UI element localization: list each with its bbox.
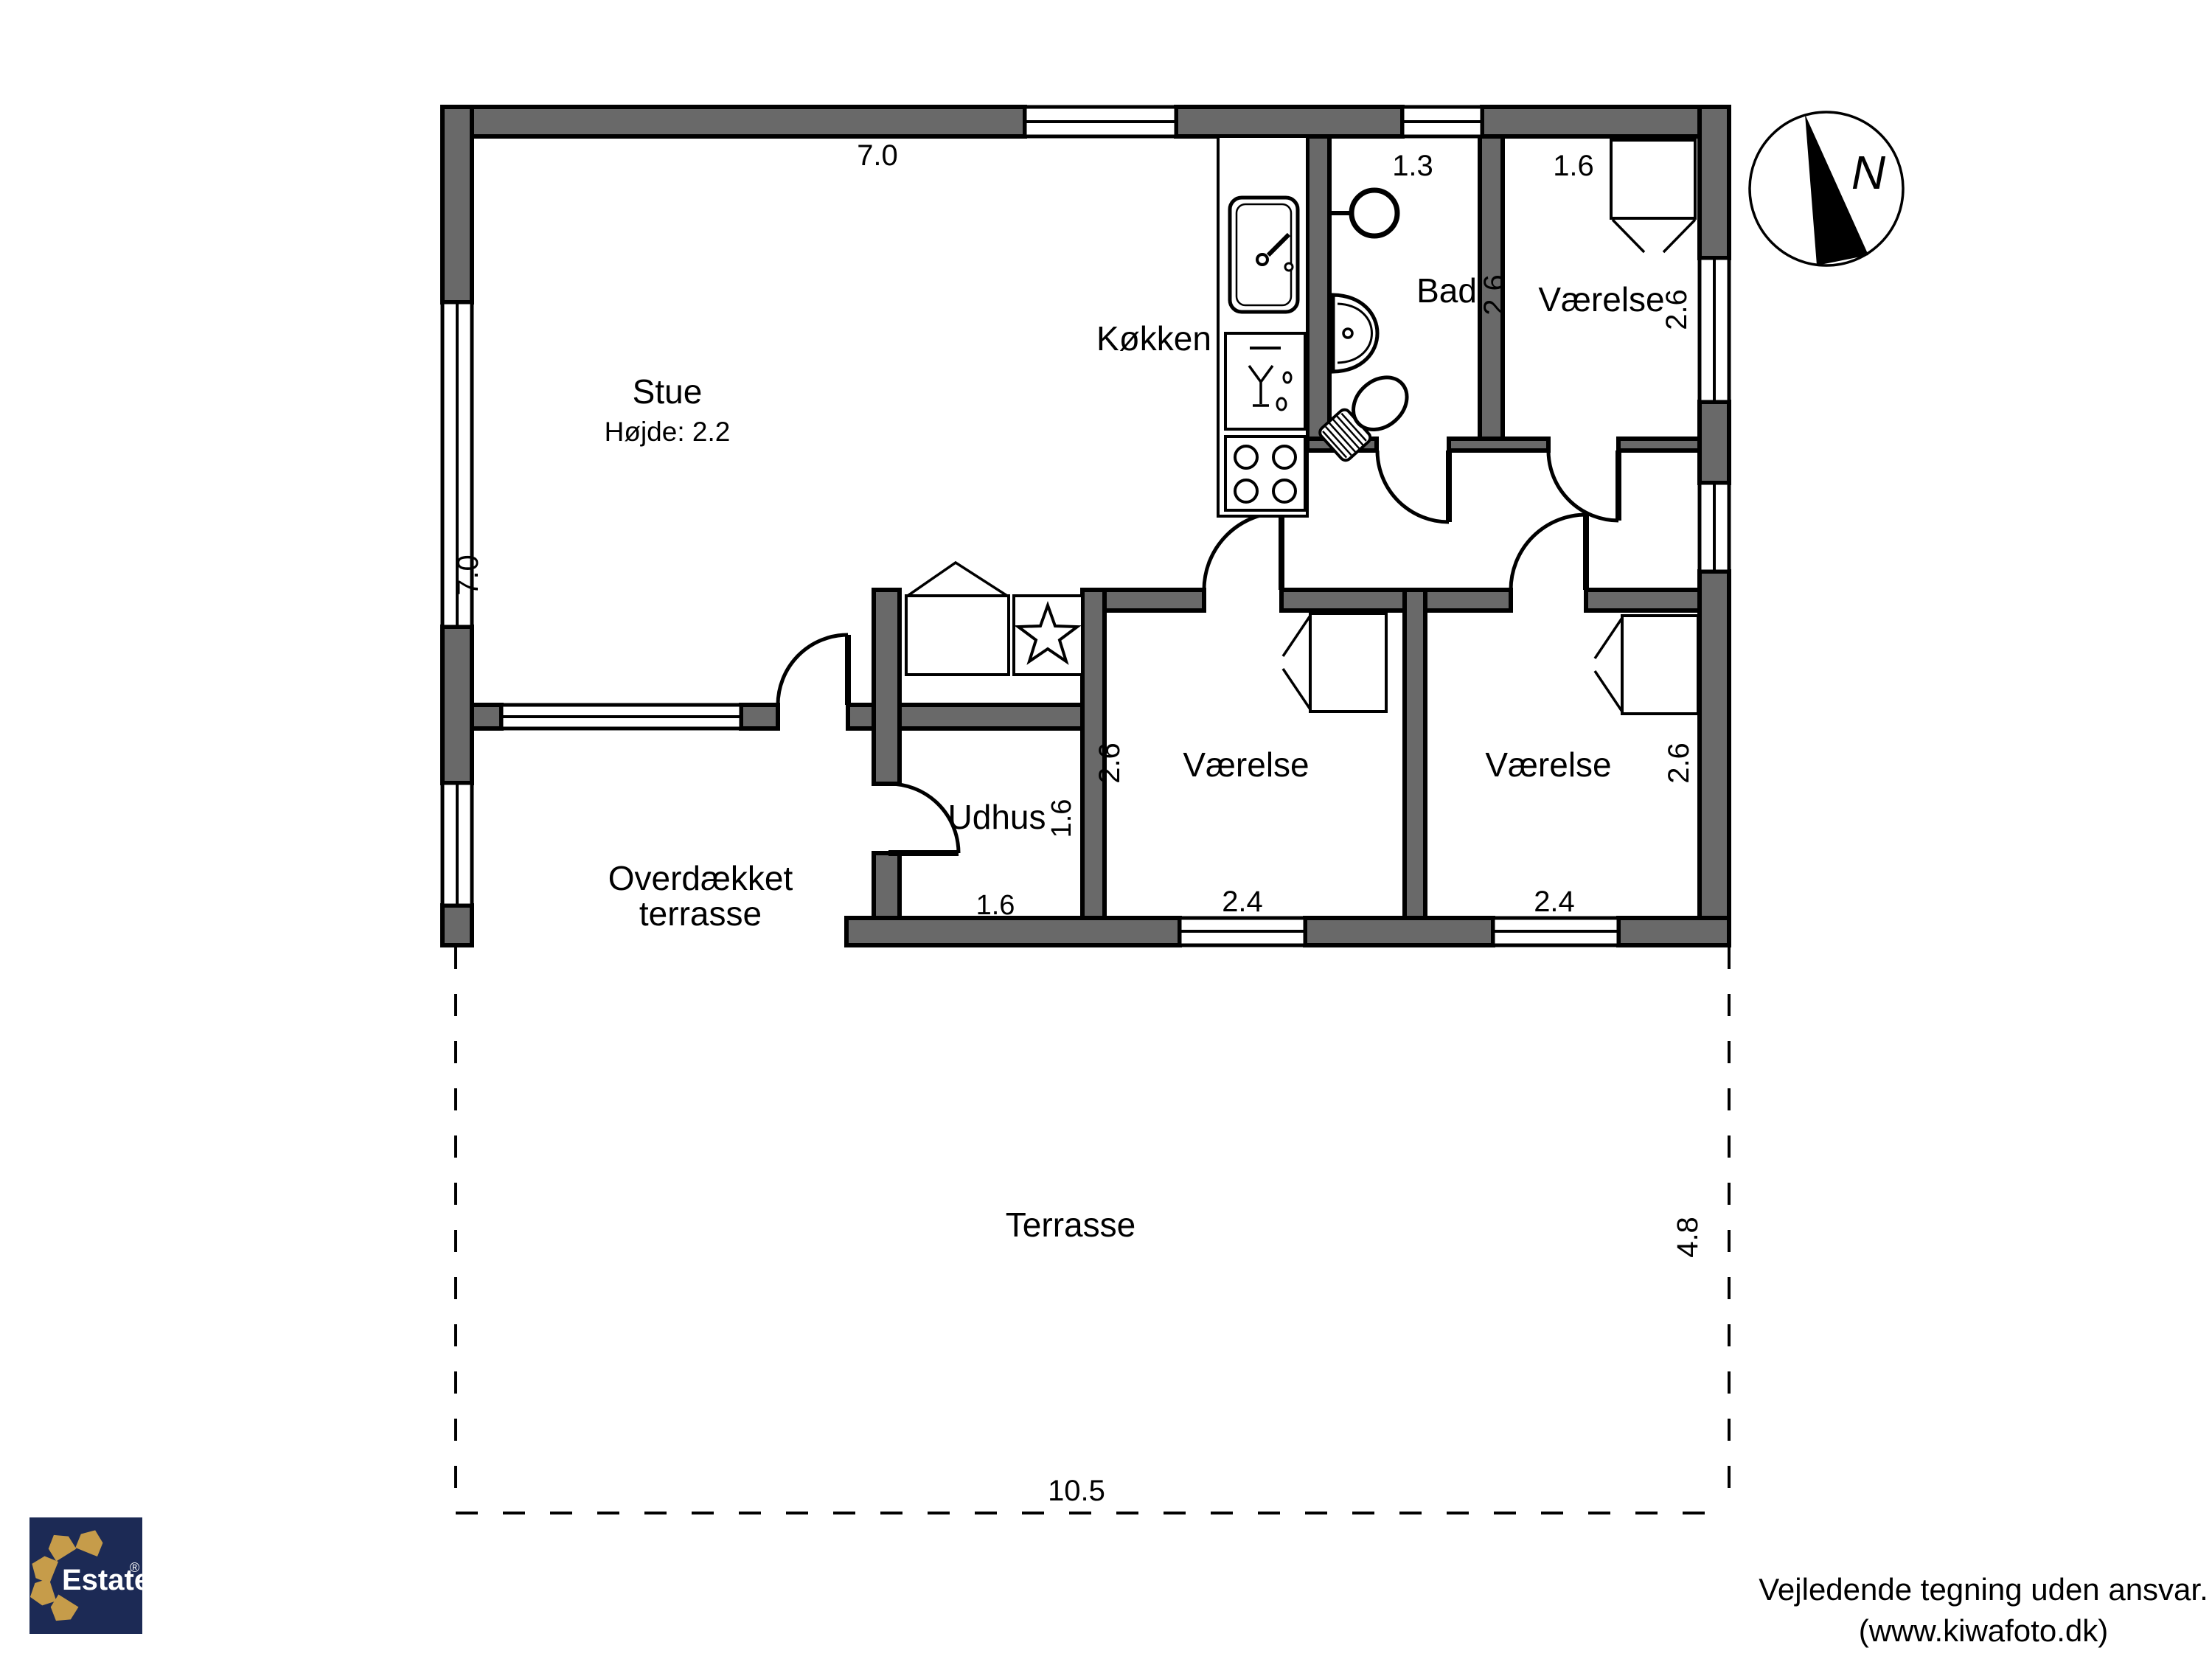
door-entrance-arc [778, 635, 848, 705]
bed-se-pillow-1 [1595, 618, 1622, 658]
wall-right-1 [1700, 107, 1729, 258]
floor-plan: N 7.0 7.0 Stue Højde: 2.2 Køkken Bad 1.3… [0, 0, 2212, 1659]
wardrobe [906, 596, 1009, 675]
room-label-udhus: Udhus [948, 798, 1046, 836]
dim-left-depth: 7.0 [452, 554, 484, 596]
disclaimer-line-1: Vejledende tegning uden ansvar. [1759, 1572, 2208, 1607]
dim-vaerelse-sw-depth: 2.6 [1093, 742, 1126, 784]
wall-bottom-1 [846, 918, 1180, 945]
wall-left-1 [442, 107, 472, 302]
bed-ne [1611, 140, 1695, 218]
estate-logo-registered: ® [130, 1560, 139, 1575]
kitchen-fixtures [1218, 136, 1307, 516]
wall-bath-south-3 [1618, 439, 1700, 451]
room-label-terrasse: Terrasse [1006, 1206, 1135, 1244]
labels: 7.0 7.0 Stue Højde: 2.2 Køkken Bad 1.3 2… [452, 139, 1704, 1507]
dim-bad-width: 1.3 [1392, 150, 1433, 182]
room-label-bad: Bad [1416, 271, 1477, 310]
wall-bath-south-2 [1449, 439, 1548, 451]
kitchen-sink-drain [1257, 254, 1267, 265]
dim-terrasse-depth: 4.8 [1672, 1217, 1704, 1258]
bed-sw [1310, 613, 1386, 712]
doors [778, 451, 1618, 853]
compass-north-label: N [1851, 146, 1886, 199]
wall-stue-south-1 [472, 705, 501, 728]
wall-stue-south-2 [741, 705, 778, 728]
kitchen-faucet-knob [1285, 263, 1293, 271]
disclaimer-line-2: (www.kiwafoto.dk) [1859, 1613, 2108, 1648]
wardrobe-open-doors [908, 563, 1007, 596]
burner-4 [1273, 480, 1295, 502]
dim-terrasse-width: 10.5 [1048, 1475, 1105, 1507]
room-label-vaerelse-sw: Værelse [1183, 745, 1309, 784]
wall-right-2 [1700, 402, 1729, 483]
bath-sink-drain [1343, 329, 1352, 338]
dim-bad-depth: 2.6 [1478, 274, 1511, 316]
wall-bedroom-divider [1405, 590, 1425, 918]
bed-se [1622, 616, 1698, 714]
door-bedroom-se-arc [1511, 515, 1586, 590]
burner-1 [1235, 446, 1257, 468]
wall-top-2 [1176, 107, 1402, 136]
wall-bottom-3 [1618, 918, 1729, 945]
estate-logo: Estate ® [27, 1517, 150, 1634]
room-label-vaerelse-se: Værelse [1485, 745, 1611, 784]
bed-sw-pillow-2 [1283, 669, 1310, 709]
wall-left-2 [442, 627, 472, 783]
dim-top-width: 7.0 [857, 139, 898, 172]
room-label-kokken: Køkken [1096, 319, 1211, 358]
wall-hall-south-3 [1586, 590, 1700, 611]
dim-vaerelse-se-depth: 2.6 [1663, 742, 1695, 784]
wall-top-1 [442, 107, 1025, 136]
bath-round-basin [1352, 190, 1397, 236]
door-bedroom-ne-arc [1548, 451, 1618, 521]
wall-right-3 [1700, 571, 1729, 945]
dishwasher-drop-1 [1284, 372, 1291, 383]
dim-vaerelse-ne-width: 1.6 [1553, 150, 1594, 182]
bed-se-pillow-2 [1595, 671, 1622, 712]
wall-bottom-2 [1305, 918, 1493, 945]
dim-vaerelse-ne-depth: 2.6 [1660, 289, 1693, 330]
wall-kitchen-bath-divider [1307, 136, 1329, 451]
wall-top-3 [1482, 107, 1729, 136]
room-note-stue-height: Højde: 2.2 [605, 417, 731, 447]
room-label-stue: Stue [633, 372, 703, 411]
room-label-overdaekket-1: Overdækket [608, 859, 793, 897]
wall-left-3 [442, 905, 472, 945]
dim-vaerelse-sw-width: 2.4 [1222, 886, 1263, 918]
dim-vaerelse-se-width: 2.4 [1534, 886, 1575, 918]
dim-udhus-width: 1.6 [976, 890, 1015, 921]
wall-hall-south-2 [1281, 590, 1511, 611]
burner-3 [1235, 480, 1257, 502]
door-bath-arc [1377, 451, 1449, 522]
burner-2 [1273, 446, 1295, 468]
door-bedroom-sw-arc [1204, 512, 1281, 590]
bed-ne-pillow-1 [1613, 220, 1644, 252]
compass: N [1750, 112, 1903, 265]
room-label-vaerelse-ne: Værelse [1538, 280, 1664, 319]
bed-sw-pillow-1 [1283, 616, 1310, 656]
wall-entry-udhus-west-2 [874, 853, 900, 918]
bed-ne-pillow-2 [1663, 220, 1695, 252]
wall-entry-udhus-west-1 [874, 590, 900, 784]
disclaimer: Vejledende tegning uden ansvar. (www.kiw… [1759, 1572, 2208, 1648]
dim-udhus-depth: 1.6 [1046, 799, 1077, 838]
dishwasher-drop-2 [1277, 398, 1286, 410]
room-label-overdaekket-2: terrasse [639, 894, 762, 933]
